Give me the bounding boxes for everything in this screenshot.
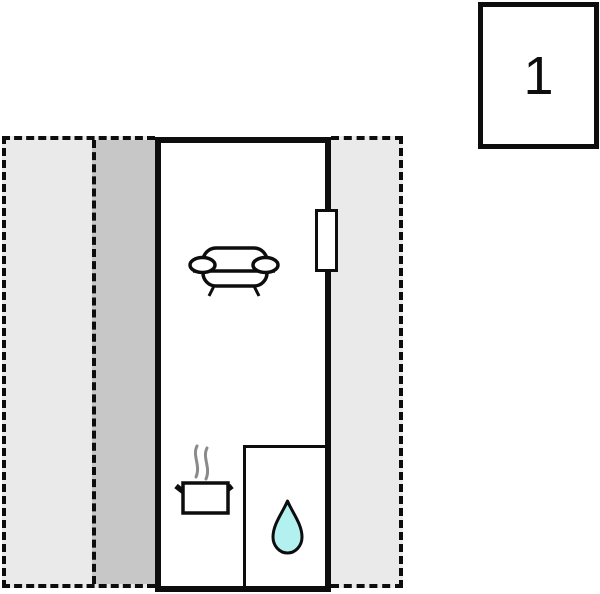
dashed-zone-left bbox=[2, 136, 155, 588]
steam-icon bbox=[205, 448, 207, 479]
dashed-zone-right bbox=[331, 136, 403, 588]
pot-body bbox=[183, 483, 228, 513]
sofa-armrest-right bbox=[253, 258, 278, 273]
door-window-marker bbox=[315, 209, 338, 272]
unit-number: 1 bbox=[523, 49, 553, 103]
unit-number-box: 1 bbox=[478, 2, 599, 149]
sofa-icon bbox=[188, 244, 280, 298]
sofa-armrest-left bbox=[190, 258, 215, 273]
dashed-zone-left-dark-strip bbox=[92, 140, 155, 584]
cooking-pot-icon bbox=[172, 443, 236, 515]
water-drop-shape bbox=[273, 501, 302, 553]
water-drop-icon bbox=[270, 498, 305, 556]
floorplan-canvas: 1 bbox=[0, 0, 600, 594]
steam-icon bbox=[195, 446, 197, 477]
sofa-leg-left bbox=[209, 286, 214, 296]
